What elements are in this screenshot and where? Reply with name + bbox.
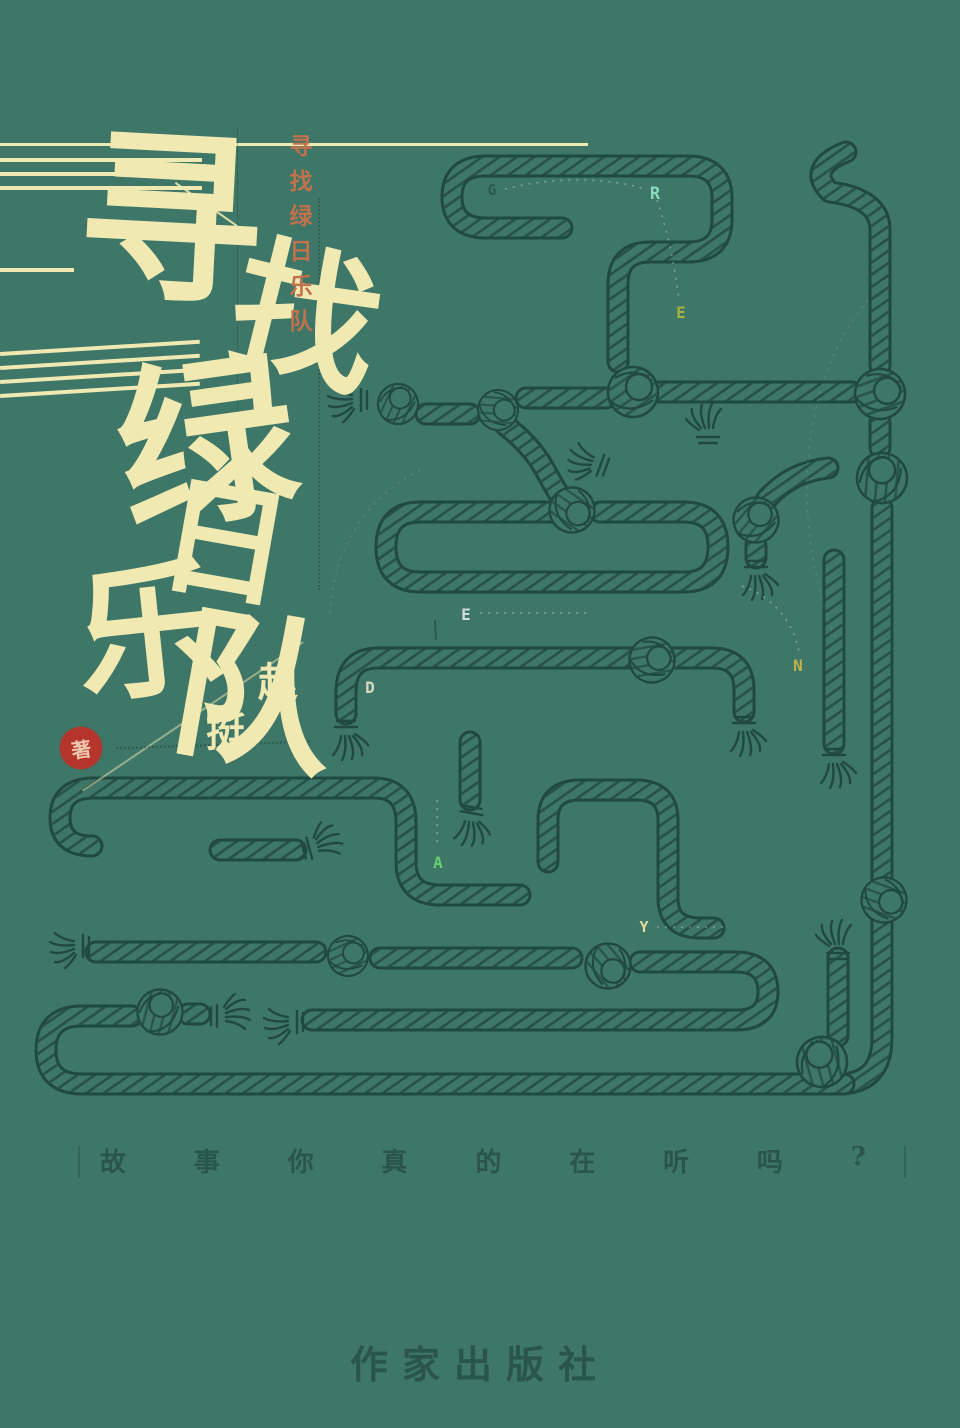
maze-letter-d: D	[365, 678, 375, 697]
tagline-char: ?	[851, 1142, 866, 1179]
book-cover: { "cover": { "background_color": "#3e766…	[0, 0, 960, 1428]
maze-letter-n: N	[793, 656, 803, 675]
maze-letters: G R E E D N A Y	[365, 181, 803, 936]
tagline-char: 在	[569, 1142, 595, 1179]
rope-segment	[766, 468, 828, 500]
author-char-1: 赵	[258, 650, 298, 708]
title-char-6: 队	[161, 599, 351, 789]
tagline-char: 你	[288, 1142, 314, 1179]
rope-segment	[548, 790, 714, 928]
maze-letter-e2: E	[461, 605, 471, 624]
maze-letter-a: A	[433, 853, 443, 872]
maze-letter-y: Y	[639, 918, 648, 936]
rope-segment	[346, 658, 744, 714]
side-title-vertical: 寻找绿日乐队	[281, 134, 315, 344]
tagline-char: 事	[194, 1142, 220, 1179]
tagline-char: 听	[663, 1142, 689, 1179]
tagline: 故 事 你 真 的 在 听 吗 ?	[100, 1142, 866, 1179]
tagline-char: 吗	[757, 1142, 783, 1179]
publisher-name: 作家出版社	[350, 1334, 610, 1389]
author-char-2: 挺	[206, 700, 246, 758]
tagline-char: 故	[100, 1142, 126, 1179]
tagline-end-bar-right	[904, 1146, 906, 1178]
rope-segment	[312, 962, 768, 1020]
maze-letter-r: R	[650, 184, 661, 204]
staff-line	[0, 268, 74, 272]
author-seal-char: 著	[69, 732, 93, 764]
tagline-end-bar-left	[78, 1146, 80, 1178]
rope-segment	[548, 790, 714, 928]
tagline-char: 的	[475, 1142, 501, 1179]
maze-letter-g: G	[487, 181, 496, 199]
rope-segment	[548, 790, 714, 928]
tagline-char: 真	[382, 1142, 408, 1179]
maze-letter-e1: E	[676, 303, 686, 322]
